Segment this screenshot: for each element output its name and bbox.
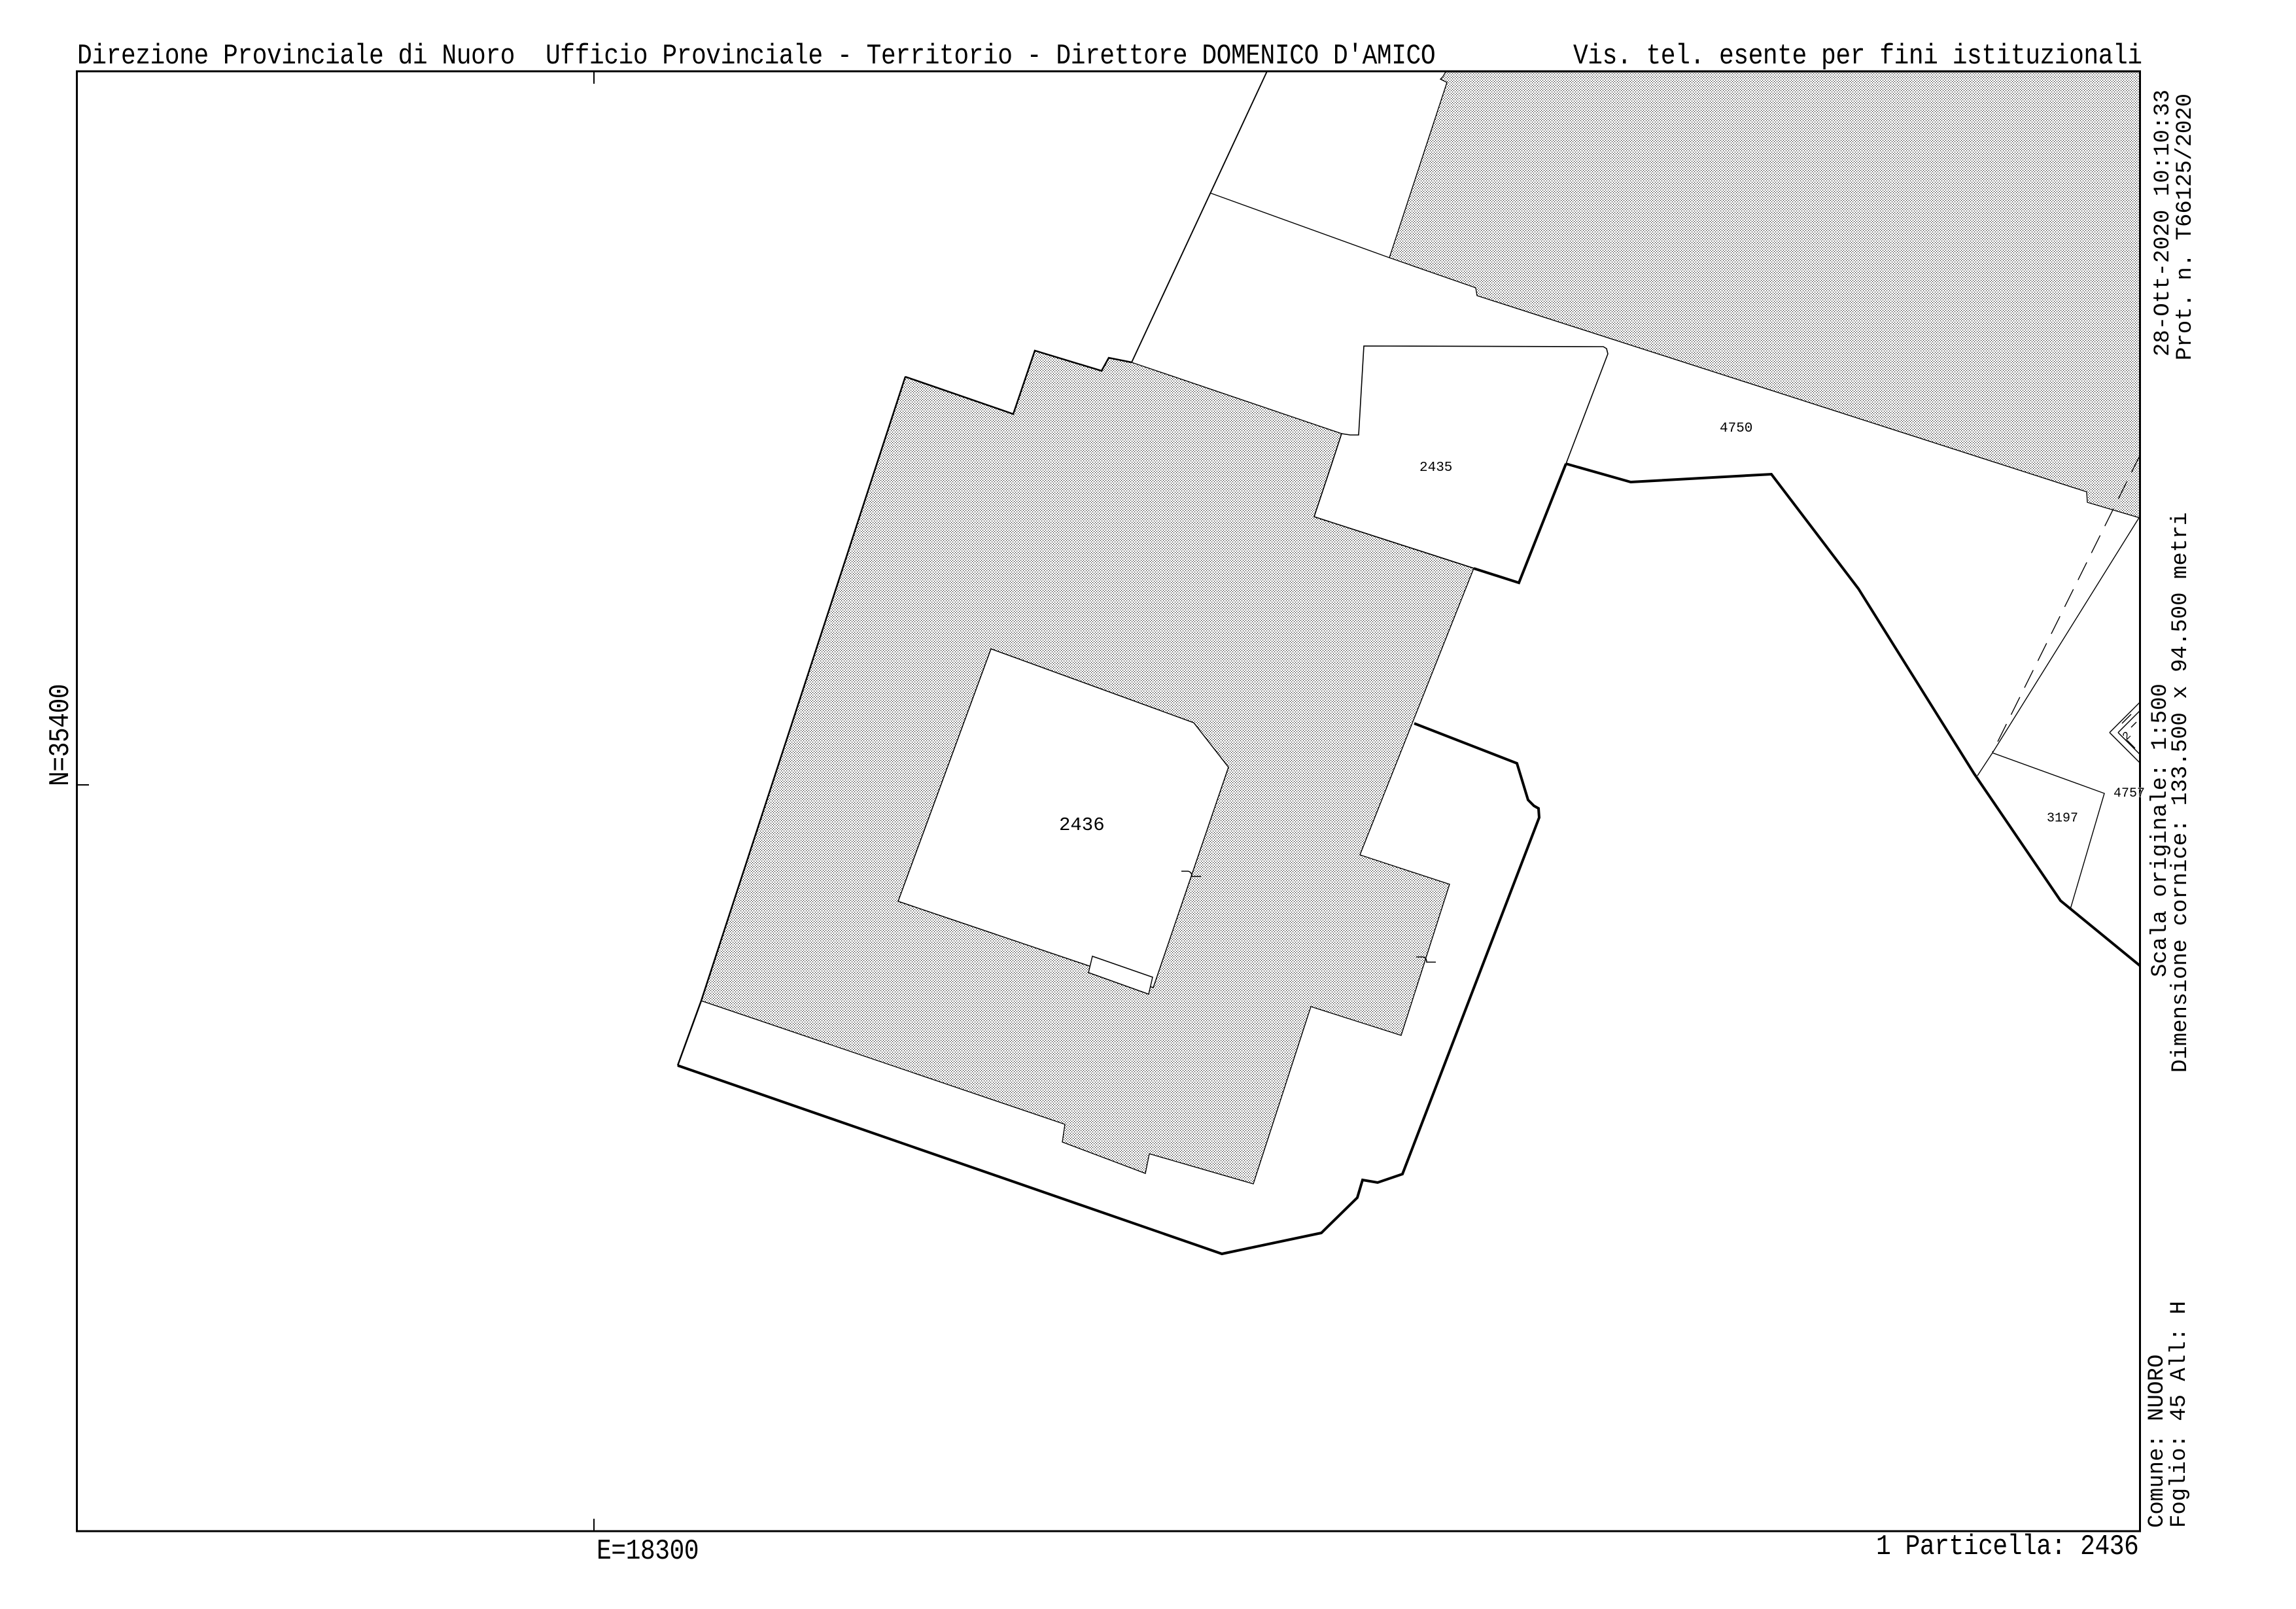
- svg-text:Vis. tel. esente per fini isti: Vis. tel. esente per fini istituzionali: [1573, 41, 2142, 73]
- svg-text:Ufficio Provinciale - Territor: Ufficio Provinciale - Territorio - Diret…: [546, 41, 1435, 73]
- svg-text:3197: 3197: [2047, 811, 2078, 826]
- svg-text:4757: 4757: [2113, 786, 2145, 801]
- svg-text:Dimensione cornice: 133.500 x: Dimensione cornice: 133.500 x 94.500 met…: [2168, 512, 2193, 1073]
- svg-text:2435: 2435: [1419, 460, 1452, 476]
- svg-text:2436: 2436: [1059, 814, 1105, 836]
- svg-text:Comune: NUORO: Comune: NUORO: [2145, 1355, 2170, 1528]
- svg-text:28-Ott-2020 10:10:33: 28-Ott-2020 10:10:33: [2151, 90, 2176, 356]
- svg-text:1 Particella: 2436: 1 Particella: 2436: [1876, 1531, 2138, 1563]
- svg-text:N=35400: N=35400: [45, 684, 77, 786]
- svg-text:Prot. n. T66125/2020: Prot. n. T66125/2020: [2173, 94, 2198, 360]
- svg-text:Direzione Provinciale di Nuoro: Direzione Provinciale di Nuoro: [77, 41, 515, 73]
- svg-text:E=18300: E=18300: [597, 1536, 699, 1568]
- svg-text:4750: 4750: [1720, 421, 1752, 436]
- svg-text:Foglio: 45 All: H: Foglio: 45 All: H: [2167, 1301, 2192, 1528]
